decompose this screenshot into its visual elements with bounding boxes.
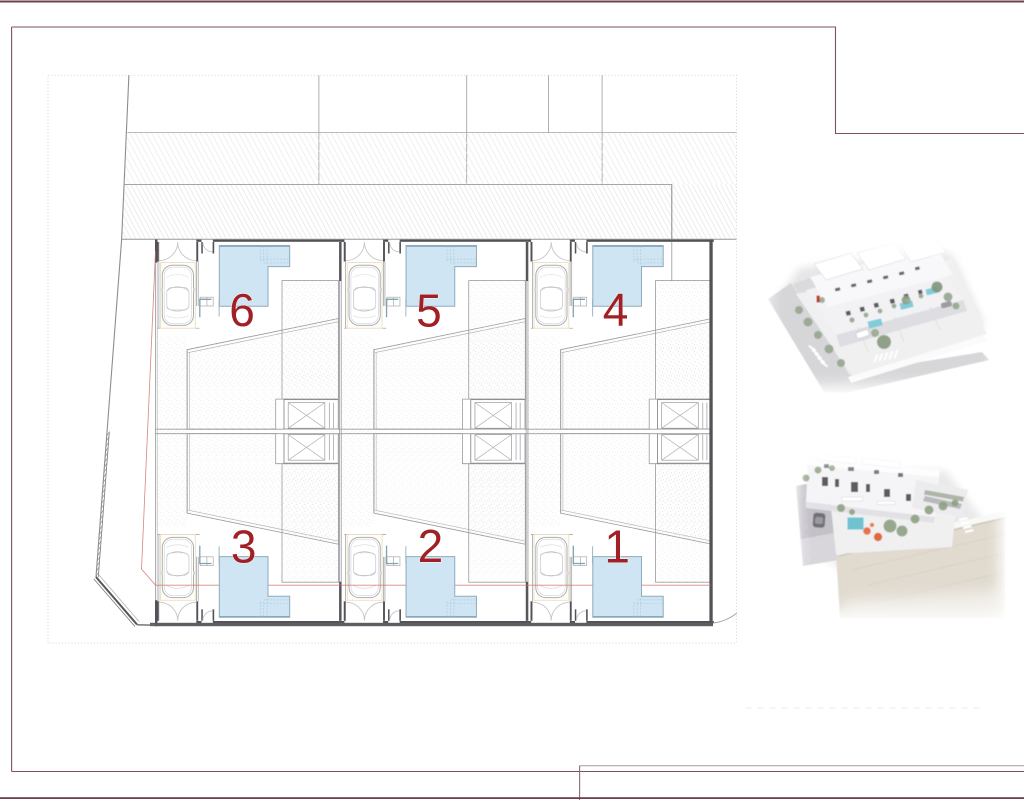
svg-text:5: 5 (416, 284, 442, 336)
svg-text:6: 6 (229, 284, 255, 336)
svg-text:1: 1 (604, 520, 630, 572)
svg-text:3: 3 (231, 520, 257, 572)
svg-text:2: 2 (418, 520, 444, 572)
svg-text:4: 4 (603, 283, 629, 335)
